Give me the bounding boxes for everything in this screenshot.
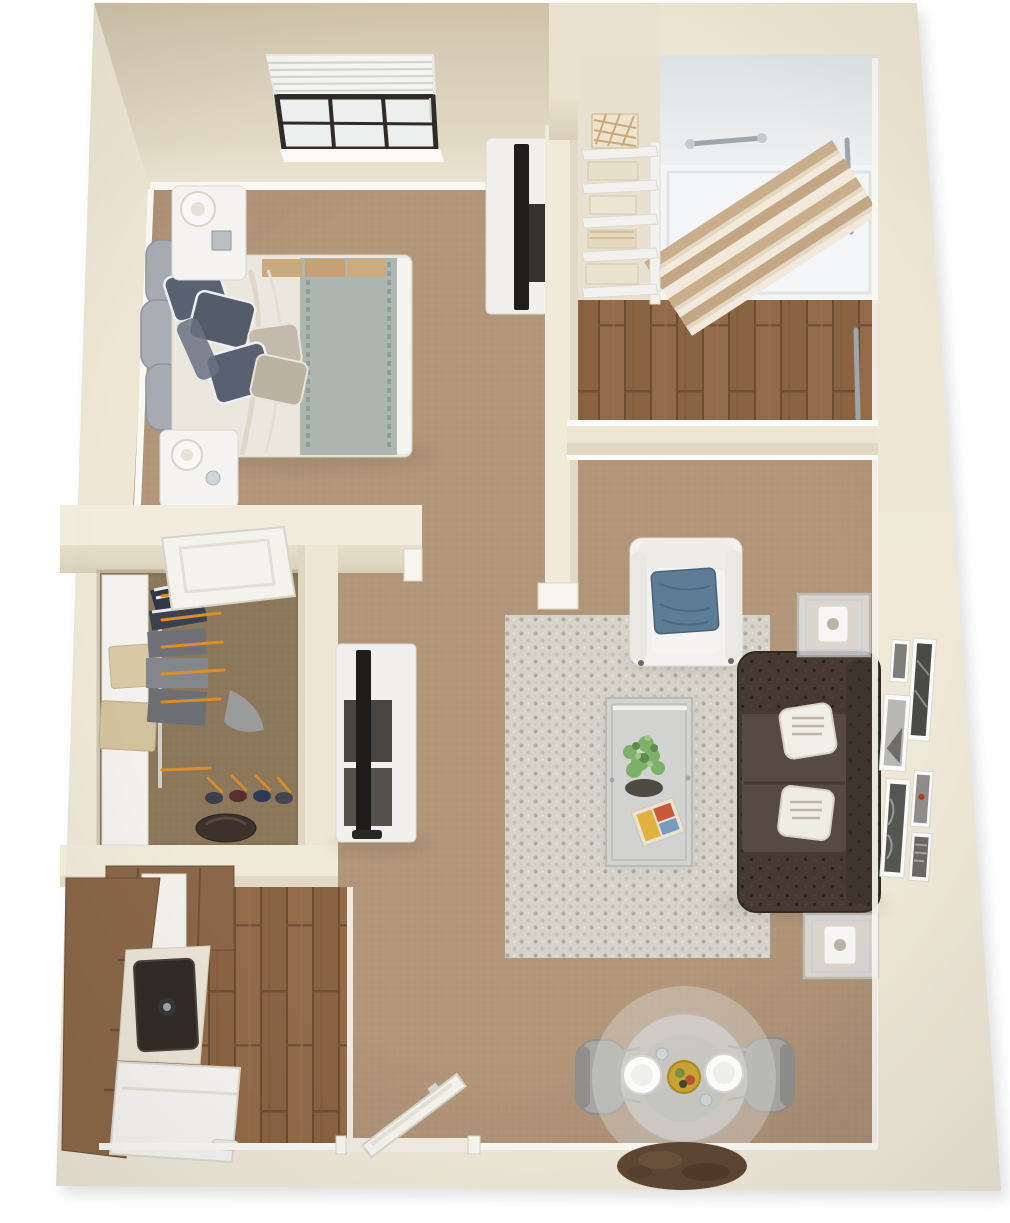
floor-plan-stage <box>0 0 1010 1223</box>
floor-plan-rendering <box>0 0 1010 1223</box>
lighting-vignette <box>56 3 1001 1191</box>
